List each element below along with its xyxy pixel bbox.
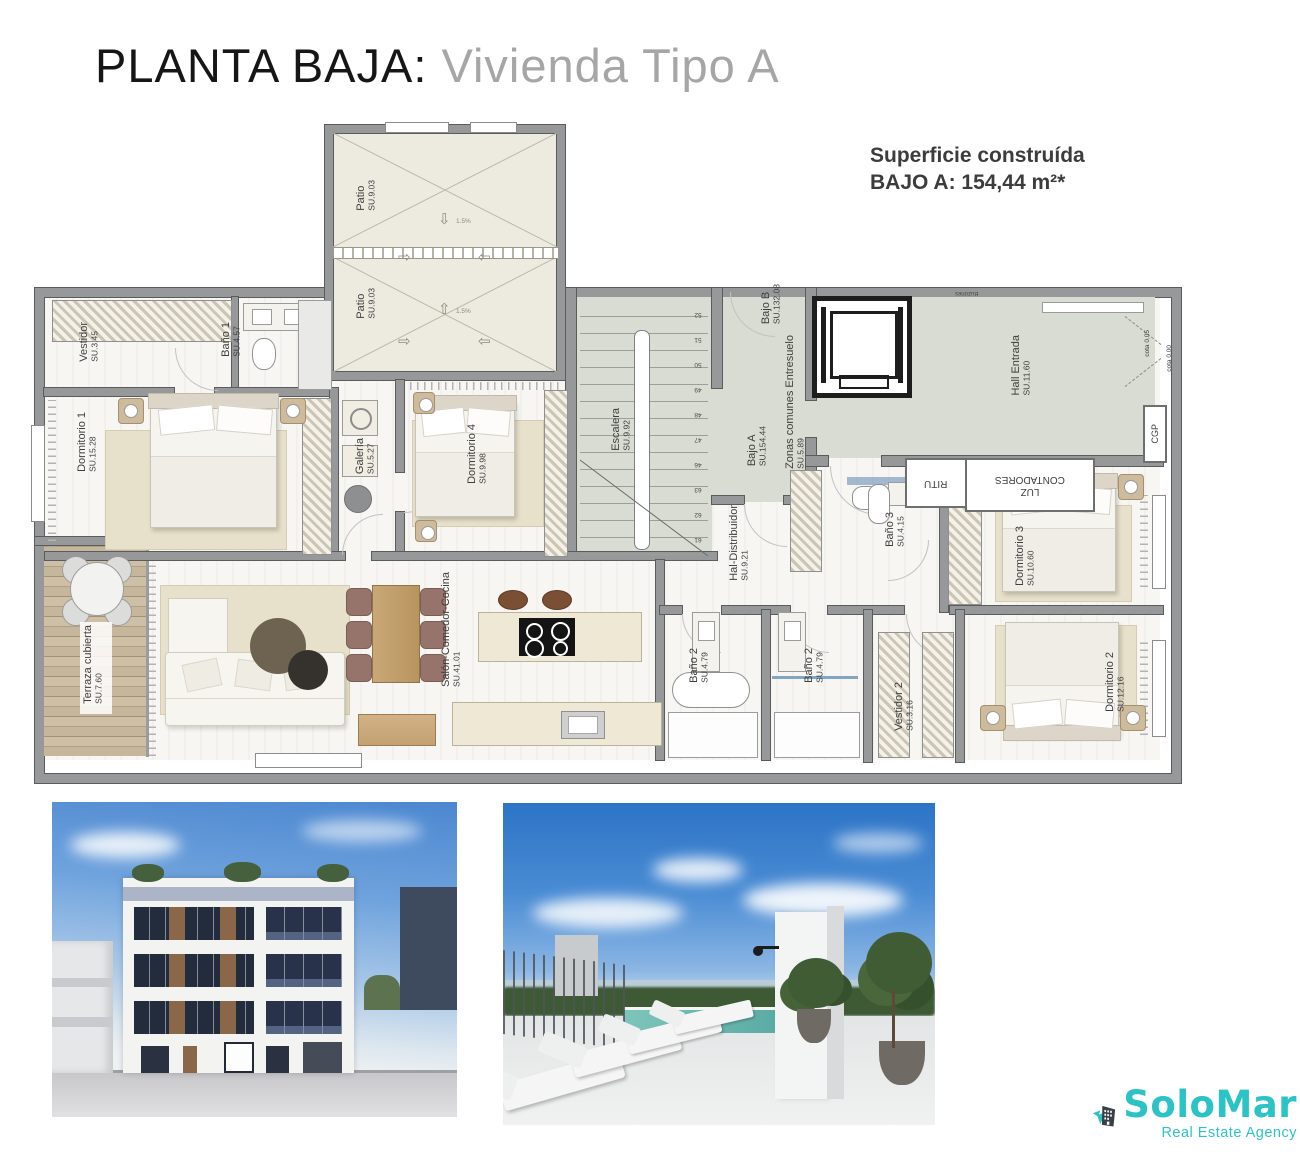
plant-icon <box>866 932 932 994</box>
solomar-logo: SoloMar Real Estate Agency <box>1092 1086 1297 1160</box>
room-label-hall-entrada: Hall EntradaSU.11.60 <box>1010 335 1032 396</box>
room-label-bajo-b: Bajo BSU.132.08 <box>760 284 782 324</box>
contadores-label: LUZ CONTADORES <box>995 473 1065 497</box>
wall <box>660 606 682 614</box>
room-label-vestidor1: VestidorSU.3.45 <box>78 322 100 362</box>
elevator-car-icon <box>830 311 898 379</box>
window <box>255 753 362 768</box>
dining-chair-icon <box>346 654 372 682</box>
solomar-logo-icon <box>1092 1086 1119 1148</box>
wall <box>396 380 404 472</box>
room-label-zonas-comunes: Zonas comunes EntresueloSU.5.89 <box>784 335 806 469</box>
room-label-bano3: Baño 3SU.4.15 <box>884 512 906 547</box>
main-building <box>123 878 354 1073</box>
room-label-patio-bottom: PatioSU.9.03 <box>355 288 377 319</box>
stair-numbers: 52515049484746636261 <box>686 302 710 554</box>
window <box>1152 640 1166 737</box>
terrace-table-icon <box>70 562 124 616</box>
room-label-dormitorio3: Dormitorio 3SU.10.60 <box>1014 526 1036 586</box>
shower-tray-icon <box>668 712 758 758</box>
room-label-dormitorio2: Dormitorio 2SU.12.16 <box>1104 652 1126 712</box>
room-label-vestidor2: Vestidor 2SU.3.16 <box>893 682 915 731</box>
wardrobe-icon <box>922 632 954 758</box>
photo-building-facade <box>52 802 457 1117</box>
stool-icon <box>498 590 528 610</box>
dining-chair-icon <box>346 588 372 616</box>
street <box>52 1070 457 1117</box>
slope-arrow-icon: ⇨ <box>398 332 411 350</box>
wall <box>762 610 770 760</box>
stool-icon <box>542 590 572 610</box>
page: PLANTA BAJA: Vivienda Tipo A Superficie … <box>0 0 1300 1163</box>
slope-arrow-icon: ⇧ <box>438 300 451 318</box>
wall <box>45 552 345 560</box>
wardrobe-icon <box>302 398 332 555</box>
buzones-label: Buzones <box>955 290 978 296</box>
elevator-shaft-icon <box>812 296 912 398</box>
terrace-glass-wall <box>146 545 149 757</box>
bed-icon <box>150 398 277 528</box>
wall <box>864 610 872 762</box>
room-label-escalera: EscaleraSU.9.92 <box>610 408 632 451</box>
shower-tray-icon <box>774 712 860 758</box>
curtain-icon <box>48 400 56 548</box>
room-label-bano2b: Baño 2SU.4.79 <box>803 648 825 683</box>
room-label-bajo-a: Bajo ASU.154.44 <box>746 426 768 466</box>
slope-label: 1.5% <box>456 308 471 315</box>
kitchen-counter-icon <box>452 702 662 746</box>
wall <box>712 288 722 388</box>
cgp-box: CGP <box>1143 405 1167 463</box>
slope-arrow-icon: ⇦ <box>478 332 491 350</box>
dining-chair-icon <box>346 621 372 649</box>
window <box>31 425 45 522</box>
room-label-distribuidor: Hal-DistribuidorSU.9.21 <box>728 505 750 581</box>
wall <box>712 496 744 504</box>
bathtub-icon <box>672 672 750 708</box>
wall <box>806 456 828 466</box>
room-label-dormitorio1: Dormitorio 1SU.15.28 <box>76 412 98 472</box>
nightstand-icon <box>980 705 1006 731</box>
sideboard-icon <box>358 714 436 746</box>
coffee-table-icon <box>288 650 328 690</box>
ritu-box: RITU <box>905 458 967 508</box>
washer-icon <box>342 400 378 436</box>
patio-window <box>385 122 449 133</box>
logo-name: SoloMar <box>1123 1086 1297 1123</box>
floor-plan: ⇩ ⇨ ⇦ 1.5% ⇧ ⇨ ⇦ 1.5% <box>0 0 1300 800</box>
room-label-bano2a: Baño 2SU.4.79 <box>688 648 710 683</box>
sink-icon <box>561 711 605 739</box>
room-label-terraza: Terraza cubiertaSU.7.60 <box>82 625 104 704</box>
contadores-box: LUZ CONTADORES <box>965 458 1095 512</box>
room-label-galeria: GaleríaSU.5.27 <box>354 438 376 474</box>
nightstand-icon <box>280 398 306 424</box>
nightstand-icon <box>415 520 437 542</box>
kitchen-island-icon <box>478 612 642 662</box>
curtain-icon <box>410 382 560 390</box>
water-heater-icon <box>344 485 372 513</box>
logo-tagline: Real Estate Agency <box>1123 1125 1297 1141</box>
wall <box>956 610 964 762</box>
photo-pool-terrace <box>503 803 935 1125</box>
neighbor-building-right <box>400 887 457 1010</box>
room-label-salon: Salón-Comedor-CocinaSU.41.01 <box>440 572 462 687</box>
patio-drain-channel-icon <box>333 247 559 259</box>
slope-arrow-icon: ⇩ <box>438 210 451 228</box>
window <box>1152 495 1166 589</box>
nightstand-icon <box>118 398 144 424</box>
bed-icon <box>1005 622 1119 736</box>
vanity-icon <box>778 612 806 672</box>
curtain-icon <box>1140 495 1148 587</box>
slope-label: 1.5% <box>456 218 471 225</box>
room-label-bano1: Baño 1SU.4.57 <box>220 322 242 357</box>
trees <box>364 975 400 1010</box>
shower-icon <box>298 300 332 390</box>
wall <box>950 606 1163 614</box>
wardrobe-icon <box>790 470 822 572</box>
wardrobe-icon <box>544 390 568 557</box>
ritu-label: RITU <box>924 478 947 489</box>
slope-arrow-icon: ⇦ <box>478 248 491 266</box>
cota-label: cota 0,00 <box>1166 345 1173 372</box>
cooktop-icon <box>519 618 575 656</box>
nightstand-icon <box>413 392 435 414</box>
neighbor-building-left <box>52 941 113 1073</box>
dining-table-icon <box>372 585 420 683</box>
room-label-patio-top: PatioSU.9.03 <box>355 180 377 211</box>
plant-icon <box>788 958 844 1008</box>
patio-window <box>470 122 517 133</box>
toilet-icon <box>252 338 276 370</box>
bed-icon <box>415 400 515 517</box>
hall-bench-icon <box>1042 302 1144 313</box>
cgp-label: CGP <box>1150 424 1160 444</box>
cota-label: cota 0,05 <box>1144 330 1151 357</box>
slope-arrow-icon: ⇨ <box>398 248 411 266</box>
nightstand-icon <box>1118 474 1144 500</box>
terrace-curtain-icon <box>149 556 156 756</box>
room-label-dormitorio4: Dormitorio 4SU.9.98 <box>466 424 488 484</box>
